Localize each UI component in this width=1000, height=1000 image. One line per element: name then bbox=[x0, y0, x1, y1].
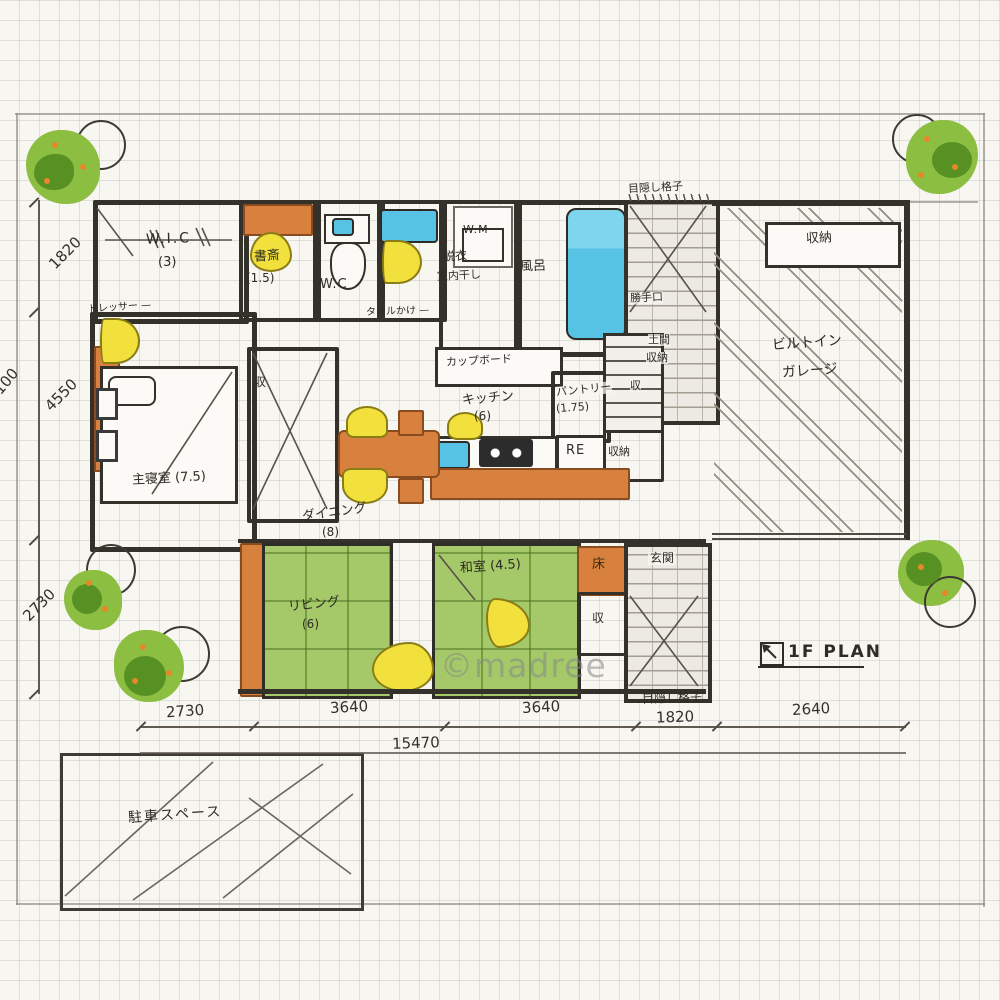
label-katteguchi: 勝手口 bbox=[630, 291, 663, 304]
study-desk bbox=[243, 204, 313, 236]
bedroom-window2 bbox=[96, 430, 118, 462]
dim-bottom-2: 3640 bbox=[330, 697, 369, 717]
toilet-water bbox=[332, 218, 354, 236]
label-wic-size: (3) bbox=[158, 256, 176, 270]
site-boundary-left bbox=[16, 113, 18, 905]
washroom-basin bbox=[380, 209, 438, 243]
label-entry-closet: 収納 bbox=[608, 446, 630, 458]
label-closet-block: 収 bbox=[254, 376, 266, 389]
dim-tick bbox=[29, 689, 40, 700]
label-doma-storage: 収 bbox=[630, 380, 641, 392]
dim-bottom-3: 3640 bbox=[522, 697, 561, 717]
bathtub bbox=[566, 208, 626, 340]
label-datsui: 脱衣 bbox=[443, 249, 468, 263]
label-pantry-size: (1.75) bbox=[556, 401, 590, 415]
label-garage-shelf: 収納 bbox=[806, 231, 833, 247]
dim-bottom-5: 2640 bbox=[792, 699, 831, 719]
bedroom-window1 bbox=[96, 388, 118, 420]
dim-left-1: 1820 bbox=[45, 233, 85, 273]
watermark: ©madree bbox=[440, 646, 607, 685]
tree-icon-top-right bbox=[890, 112, 982, 202]
label-doma2: 収納 bbox=[646, 352, 668, 364]
dim-total-width: 15470 bbox=[392, 733, 440, 753]
dim-total-height: 9100 bbox=[0, 365, 22, 406]
label-fence-bottom: 目隠し格子 bbox=[642, 691, 702, 706]
label-tokonoma: 床 bbox=[592, 558, 605, 572]
dim-bottom-1: 2730 bbox=[165, 701, 204, 722]
label-wm: W.M bbox=[463, 224, 489, 236]
wall-living-top bbox=[238, 539, 706, 543]
label-fridge: RE bbox=[566, 444, 585, 458]
genkan-floor bbox=[624, 543, 712, 703]
label-bath: 風呂 bbox=[520, 260, 546, 275]
label-doma: 土間 bbox=[648, 334, 670, 346]
dining-stool-bottom bbox=[398, 478, 424, 504]
dim-left-2: 4550 bbox=[41, 375, 81, 415]
floor-plan-canvas: W.I.C (3) 書斎 (1.5) W.C W.M 脱衣 室内干し 風呂 タオ… bbox=[0, 0, 1000, 1000]
garage-door-line2 bbox=[712, 538, 906, 540]
label-towel: タオルかけ — bbox=[366, 305, 430, 318]
garage-shelf bbox=[765, 222, 901, 268]
closet-block bbox=[247, 347, 339, 523]
label-kitchen-size: (6) bbox=[474, 410, 491, 423]
label-dining-size: (8) bbox=[322, 526, 339, 539]
garage-wall-top bbox=[712, 200, 910, 206]
kitchen-island-counter bbox=[430, 468, 630, 500]
label-study: 書斎 bbox=[254, 249, 281, 265]
label-genkan: 玄関 bbox=[648, 552, 676, 565]
garage-wall-right bbox=[904, 200, 910, 540]
site-boundary-right bbox=[983, 113, 985, 907]
label-study-size: (1.5) bbox=[246, 272, 274, 285]
label-kitchen: キッチン bbox=[461, 390, 514, 409]
label-wic: W.I.C bbox=[146, 231, 192, 248]
dim-bottom-4: 1820 bbox=[656, 707, 695, 726]
label-washitsu-closet: 収 bbox=[592, 612, 604, 625]
dim-line-left bbox=[38, 200, 40, 694]
plan-title: 1F PLAN bbox=[788, 643, 882, 662]
tree-icon-bottom-left bbox=[110, 612, 210, 710]
kitchen-stove bbox=[479, 439, 533, 467]
label-wc: W.C bbox=[320, 278, 348, 292]
tree-icon-right bbox=[890, 534, 976, 634]
privacy-fence-marks bbox=[624, 194, 714, 201]
label-datsui2: 室内干し bbox=[437, 269, 482, 283]
dining-chair-bottom bbox=[342, 468, 388, 504]
dining-stool-top bbox=[398, 410, 424, 436]
dim-line-total bbox=[140, 752, 906, 754]
wall-living-bottom bbox=[238, 689, 706, 694]
garage-door-line1 bbox=[712, 533, 906, 535]
dining-chair-top bbox=[346, 406, 388, 438]
site-boundary-top bbox=[15, 113, 985, 115]
north-arrow-icon bbox=[760, 642, 784, 666]
plan-title-underline bbox=[758, 666, 864, 668]
parking-hatch-lines bbox=[63, 756, 355, 902]
parking-area bbox=[60, 753, 364, 911]
label-living-size: (6) bbox=[302, 618, 319, 631]
tree-icon-top-left bbox=[26, 120, 122, 210]
